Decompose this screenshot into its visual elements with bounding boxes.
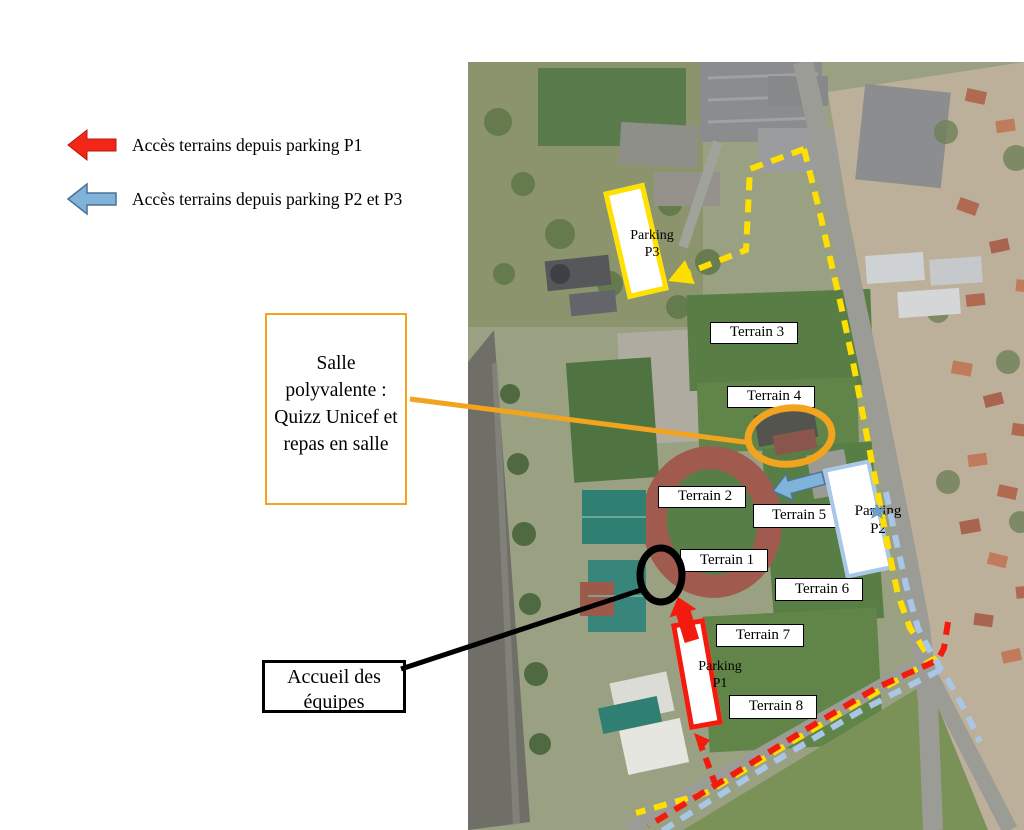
parking-p1-label: Parking P1 — [680, 659, 760, 692]
accueil-line-1: Accueil des — [265, 665, 403, 690]
map-label-terrain-8: Terrain 8 — [729, 695, 817, 719]
map-label-terrain-3: Terrain 3 — [710, 322, 798, 344]
salle-line-4: repas en salle — [267, 432, 405, 459]
map-label-terrain-7: Terrain 7 — [716, 624, 804, 647]
callout-accueil-des-equipes: Accueil des équipes — [262, 660, 406, 713]
accueil-line-2: équipes — [265, 690, 403, 715]
blue-left-arrow-shape — [68, 184, 116, 214]
blue-left-arrow-icon — [66, 181, 118, 217]
callout-salle-polyvalente: Salle polyvalente : Quizz Unicef et repa… — [265, 313, 407, 505]
legend-label-p2-p3: Accès terrains depuis parking P2 et P3 — [132, 189, 402, 210]
clay-court — [580, 582, 614, 616]
building-top-1 — [619, 122, 699, 168]
round-tank — [550, 264, 570, 284]
field-west — [566, 357, 659, 483]
red-left-arrow-shape — [68, 130, 116, 160]
salle-line-3: Quizz Unicef et — [267, 405, 405, 432]
map-label-terrain-4: Terrain 4 — [727, 386, 815, 408]
event-access-map-page: Accès terrains depuis parking P1 Accès t… — [0, 0, 1024, 830]
map-label-terrain-5: Terrain 5 — [753, 504, 839, 528]
salle-line-2: polyvalente : — [267, 378, 405, 405]
map-label-terrain-2: Terrain 2 — [658, 486, 746, 508]
parking-p2-label: Parking P2 — [838, 503, 918, 538]
legend-label-p1: Accès terrains depuis parking P1 — [132, 135, 362, 156]
legend-item-parking-p2-p3: Accès terrains depuis parking P2 et P3 — [66, 180, 402, 218]
red-left-arrow-icon — [66, 127, 118, 163]
salle-line-1: Salle — [267, 351, 405, 378]
legend-item-parking-p1: Accès terrains depuis parking P1 — [66, 126, 362, 164]
parking-p3-label: Parking P3 — [612, 228, 692, 261]
map-label-terrain-6: Terrain 6 — [775, 578, 863, 601]
map-label-terrain-1: Terrain 1 — [680, 549, 768, 572]
